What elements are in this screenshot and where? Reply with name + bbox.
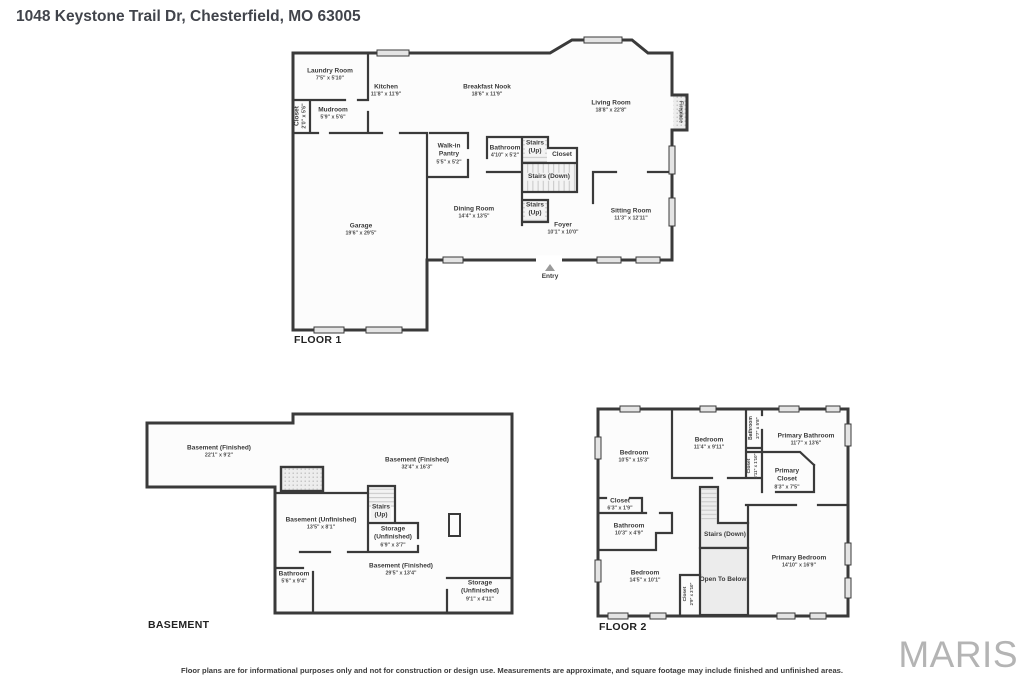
room-label-bathroom-bsmt: Bathroom5'6" x 9'4" bbox=[279, 570, 310, 585]
room-label-breakfast-nook: Breakfast Nook18'6" x 11'9" bbox=[463, 83, 511, 98]
entry-arrow-icon bbox=[545, 264, 555, 271]
room-label-bathroom-small: Bathroom2'7" x 5'8" bbox=[748, 416, 760, 440]
room-label-primary-bathroom: Primary Bathroom11'7" x 13'6" bbox=[778, 432, 835, 447]
room-label-primary-closet: Primary Closet8'3" x 7'5" bbox=[771, 467, 803, 490]
room-label-fireplace: Fireplace bbox=[677, 101, 684, 123]
room-label-basement-unfinished: Basement (Unfinished)13'5" x 8'1" bbox=[286, 516, 357, 531]
room-label-bathroom-f2: Bathroom10'3" x 4'9" bbox=[614, 522, 645, 537]
room-label-laundry: Laundry Room7'5" x 5'10" bbox=[307, 67, 353, 82]
room-label-foyer: Foyer10'1" x 10'0" bbox=[547, 221, 578, 236]
room-label-living-room: Living Room18'8" x 22'8" bbox=[591, 99, 630, 114]
room-label-pantry: Walk-in Pantry5'5" x 5'2" bbox=[433, 142, 465, 165]
floor2-label: FLOOR 2 bbox=[599, 621, 647, 633]
room-label-mudroom: Mudroom5'9" x 5'6" bbox=[318, 106, 348, 121]
room-label-garage: Garage19'6" x 29'5" bbox=[345, 222, 376, 237]
room-label-kitchen: Kitchen11'8" x 11'9" bbox=[371, 83, 402, 98]
room-label-open-to-below: Open To Below bbox=[700, 576, 747, 584]
room-label-bathroom-f1: Bathroom4'10" x 5'2" bbox=[490, 144, 521, 159]
room-label-primary-bedroom: Primary Bedroom14'10" x 16'9" bbox=[772, 554, 827, 569]
entry-label: Entry bbox=[542, 273, 559, 281]
room-label-dining-room: Dining Room14'4" x 13'5" bbox=[454, 205, 494, 220]
room-label-closet-f1: Closet2'0" x 5'6" bbox=[293, 103, 308, 128]
room-label-stairs-up-a: Stairs(Up) bbox=[525, 140, 545, 157]
room-label-closet-tiny: Closet2'11" x 1'10" bbox=[747, 454, 759, 479]
room-label-stairs-down-f1: Stairs (Down) bbox=[527, 173, 571, 181]
room-label-stairs-bsmt: Stairs(Up) bbox=[371, 504, 391, 521]
room-label-basement-finished-bottom: Basement (Finished)29'5" x 13'4" bbox=[369, 562, 433, 577]
room-label-bedroom-mid: Bedroom11'4" x 9'11" bbox=[694, 436, 725, 451]
room-label-storage-b: Storage(Unfinished)9'1" x 4'11" bbox=[461, 579, 499, 602]
room-label-stairs-up-b: Stairs(Up) bbox=[525, 202, 545, 219]
floor1-label: FLOOR 1 bbox=[294, 334, 342, 346]
basement-label: BASEMENT bbox=[148, 619, 209, 631]
room-label-closet-mid: Closet2'9" x 3'10" bbox=[683, 583, 695, 606]
room-label-stairs-down-f2: Stairs (Down) bbox=[704, 531, 746, 539]
room-label-basement-finished-left: Basement (Finished)22'1" x 9'2" bbox=[187, 444, 251, 459]
room-label-closet-left: Closet6'3" x 1'9" bbox=[607, 497, 632, 512]
room-label-bedroom-bottom: Bedroom14'5" x 10'1" bbox=[629, 569, 660, 584]
room-label-sitting-room: Sitting Room11'3" x 12'11" bbox=[611, 207, 651, 222]
room-label-stairs-closet: Closet bbox=[552, 151, 572, 159]
disclaimer-text: Floor plans are for informational purpos… bbox=[0, 666, 1024, 675]
maris-watermark: MARIS bbox=[898, 634, 1018, 676]
floorplan-walls bbox=[0, 0, 1024, 682]
room-label-basement-finished-main: Basement (Finished)32'4" x 16'3" bbox=[385, 456, 449, 471]
floorplan-page: 1048 Keystone Trail Dr, Chesterfield, MO… bbox=[0, 0, 1024, 682]
room-label-bedroom-left: Bedroom10'5" x 15'3" bbox=[618, 449, 649, 464]
room-label-storage-a: Storage(Unfinished)6'9" x 3'7" bbox=[374, 525, 412, 548]
